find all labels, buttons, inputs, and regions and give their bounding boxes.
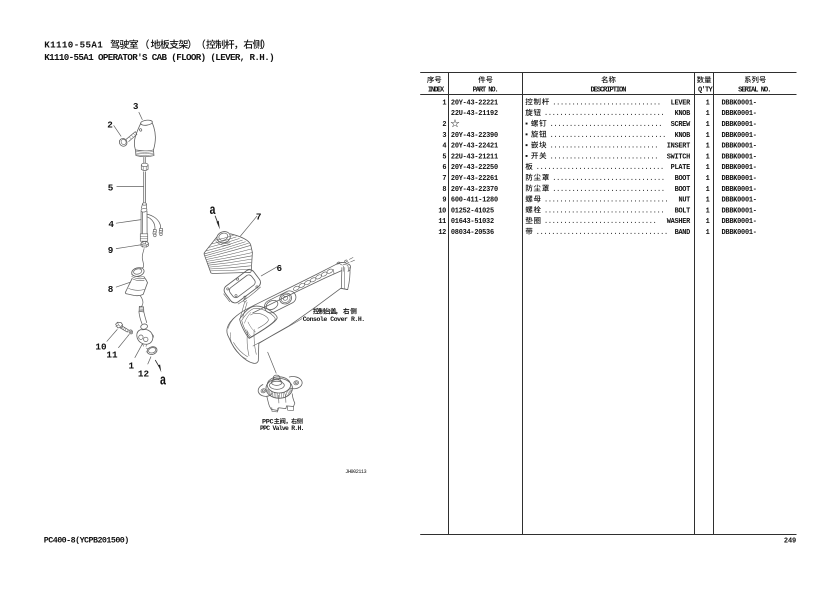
svg-text:KNOB: KNOB: [675, 132, 691, 140]
svg-text:7: 7: [442, 175, 446, 183]
svg-text:1: 1: [706, 207, 710, 215]
svg-text:DBBK0001-: DBBK0001-: [722, 132, 757, 140]
svg-text:DBBK0001-: DBBK0001-: [722, 175, 757, 183]
svg-text:11: 11: [106, 349, 118, 360]
svg-text:LEVER: LEVER: [671, 99, 692, 107]
svg-text:PLATE: PLATE: [671, 164, 691, 172]
svg-text:DBBK0001-: DBBK0001-: [722, 164, 757, 172]
svg-text:6: 6: [277, 263, 283, 274]
svg-text:22U-43-21211: 22U-43-21211: [451, 153, 498, 161]
svg-text:1: 1: [442, 99, 446, 107]
svg-text:10: 10: [438, 207, 446, 215]
svg-text:DBBK0001-: DBBK0001-: [722, 197, 757, 205]
svg-text:20Y-43-22390: 20Y-43-22390: [451, 132, 498, 140]
svg-text:DBBK0001-: DBBK0001-: [722, 229, 757, 237]
svg-text:PPC Valve R.H.: PPC Valve R.H.: [260, 425, 305, 432]
svg-text:1: 1: [706, 121, 710, 129]
svg-text:.............................: .............................: [550, 121, 663, 129]
svg-text:1: 1: [706, 175, 710, 183]
svg-text:DESCRIPTION: DESCRIPTION: [591, 87, 627, 95]
svg-text:1: 1: [706, 153, 710, 161]
svg-text:INSERT: INSERT: [667, 143, 691, 151]
svg-text:DBBK0001-: DBBK0001-: [722, 218, 757, 226]
svg-text:PC400-8(YCPB201500): PC400-8(YCPB201500): [44, 536, 130, 546]
svg-text:INDEX: INDEX: [428, 87, 445, 95]
svg-text:.............................: .............................: [552, 186, 665, 194]
svg-text:249: 249: [784, 537, 796, 545]
svg-text:1: 1: [129, 360, 135, 371]
svg-text:20Y-43-22250: 20Y-43-22250: [451, 164, 498, 172]
svg-text:1: 1: [706, 218, 710, 226]
svg-text:600-411-1280: 600-411-1280: [451, 197, 498, 205]
svg-text:20Y-43-22221: 20Y-43-22221: [451, 99, 498, 107]
svg-text:..............................: ..................................: [536, 229, 668, 237]
svg-text:BOOT: BOOT: [675, 175, 691, 183]
svg-text:3: 3: [442, 132, 446, 140]
svg-text:a: a: [160, 372, 167, 389]
svg-text:SERIAL NO.: SERIAL NO.: [738, 87, 771, 95]
svg-text:20Y-43-22261: 20Y-43-22261: [451, 175, 498, 183]
svg-text:12: 12: [138, 369, 150, 380]
svg-text:BOLT: BOLT: [675, 207, 691, 215]
svg-text:DBBK0001-: DBBK0001-: [722, 121, 757, 129]
svg-text:.............................: .............................: [544, 218, 657, 226]
svg-text:............................: ............................: [550, 143, 659, 151]
svg-text:3: 3: [133, 101, 139, 112]
svg-text:8: 8: [442, 186, 446, 194]
svg-text:SWITCH: SWITCH: [667, 153, 691, 161]
svg-text:01252-41025: 01252-41025: [451, 207, 494, 215]
svg-text:............................: ............................: [550, 153, 659, 161]
svg-text:2: 2: [442, 121, 446, 129]
svg-text:..............................: .................................: [536, 164, 665, 172]
svg-text:01643-51032: 01643-51032: [451, 218, 494, 226]
svg-text:DBBK0001-: DBBK0001-: [722, 186, 757, 194]
svg-text:JH002113: JH002113: [345, 469, 367, 475]
svg-text:20Y-43-22370: 20Y-43-22370: [451, 186, 498, 194]
svg-text:5: 5: [108, 182, 114, 193]
svg-text:11: 11: [438, 218, 446, 226]
svg-text:............................: ............................: [552, 99, 661, 107]
svg-text:22U-43-21192: 22U-43-21192: [451, 110, 498, 118]
svg-text:5: 5: [442, 153, 446, 161]
svg-text:8: 8: [108, 284, 114, 295]
svg-text:1: 1: [706, 99, 710, 107]
svg-text:.............................: .............................: [552, 175, 665, 183]
svg-text:08034-20536: 08034-20536: [451, 229, 494, 237]
svg-text:..............................: ...............................: [544, 110, 665, 118]
svg-text:SCREW: SCREW: [671, 121, 692, 129]
svg-text:DBBK0001-: DBBK0001-: [722, 207, 757, 215]
svg-text:DBBK0001-: DBBK0001-: [722, 99, 757, 107]
svg-text:DBBK0001-: DBBK0001-: [722, 110, 757, 118]
svg-text:BAND: BAND: [675, 229, 691, 237]
svg-text:..............................: ..............................: [550, 132, 667, 140]
svg-text:BOOT: BOOT: [675, 186, 691, 194]
svg-text:20Y-43-22421: 20Y-43-22421: [451, 143, 498, 151]
svg-text:KNOB: KNOB: [675, 110, 691, 118]
svg-text:NUT: NUT: [679, 197, 691, 205]
svg-text:9: 9: [442, 197, 446, 205]
svg-text:WASHER: WASHER: [667, 218, 691, 226]
svg-text:1: 1: [706, 186, 710, 194]
svg-text:DBBK0001-: DBBK0001-: [722, 153, 757, 161]
svg-text:Console Cover R.H.: Console Cover R.H.: [303, 316, 366, 323]
svg-text:4: 4: [108, 219, 114, 230]
svg-text:..............................: ................................: [544, 197, 669, 205]
svg-text:K1110-55A1: K1110-55A1: [44, 40, 103, 51]
svg-text:12: 12: [438, 229, 446, 237]
svg-text:9: 9: [108, 245, 114, 256]
svg-text:DBBK0001-: DBBK0001-: [722, 143, 757, 151]
svg-text:6: 6: [442, 164, 446, 172]
svg-text:..............................: ...............................: [544, 207, 665, 215]
svg-text:1: 1: [706, 132, 710, 140]
svg-text:1: 1: [706, 164, 710, 172]
svg-text:2: 2: [107, 119, 113, 130]
svg-text:4: 4: [442, 143, 446, 151]
svg-text:PART NO.: PART NO.: [473, 87, 499, 95]
svg-text:1: 1: [706, 229, 710, 237]
svg-text:K1110-55A1 OPERATOR'S CAB (FLO: K1110-55A1 OPERATOR'S CAB (FLOOR) (LEVER…: [44, 52, 274, 63]
svg-text:1: 1: [706, 143, 710, 151]
svg-text:1: 1: [706, 197, 710, 205]
svg-text:7: 7: [256, 212, 262, 223]
svg-text:Q'TY: Q'TY: [698, 87, 713, 95]
svg-text:10: 10: [95, 342, 107, 353]
svg-text:1: 1: [706, 110, 710, 118]
